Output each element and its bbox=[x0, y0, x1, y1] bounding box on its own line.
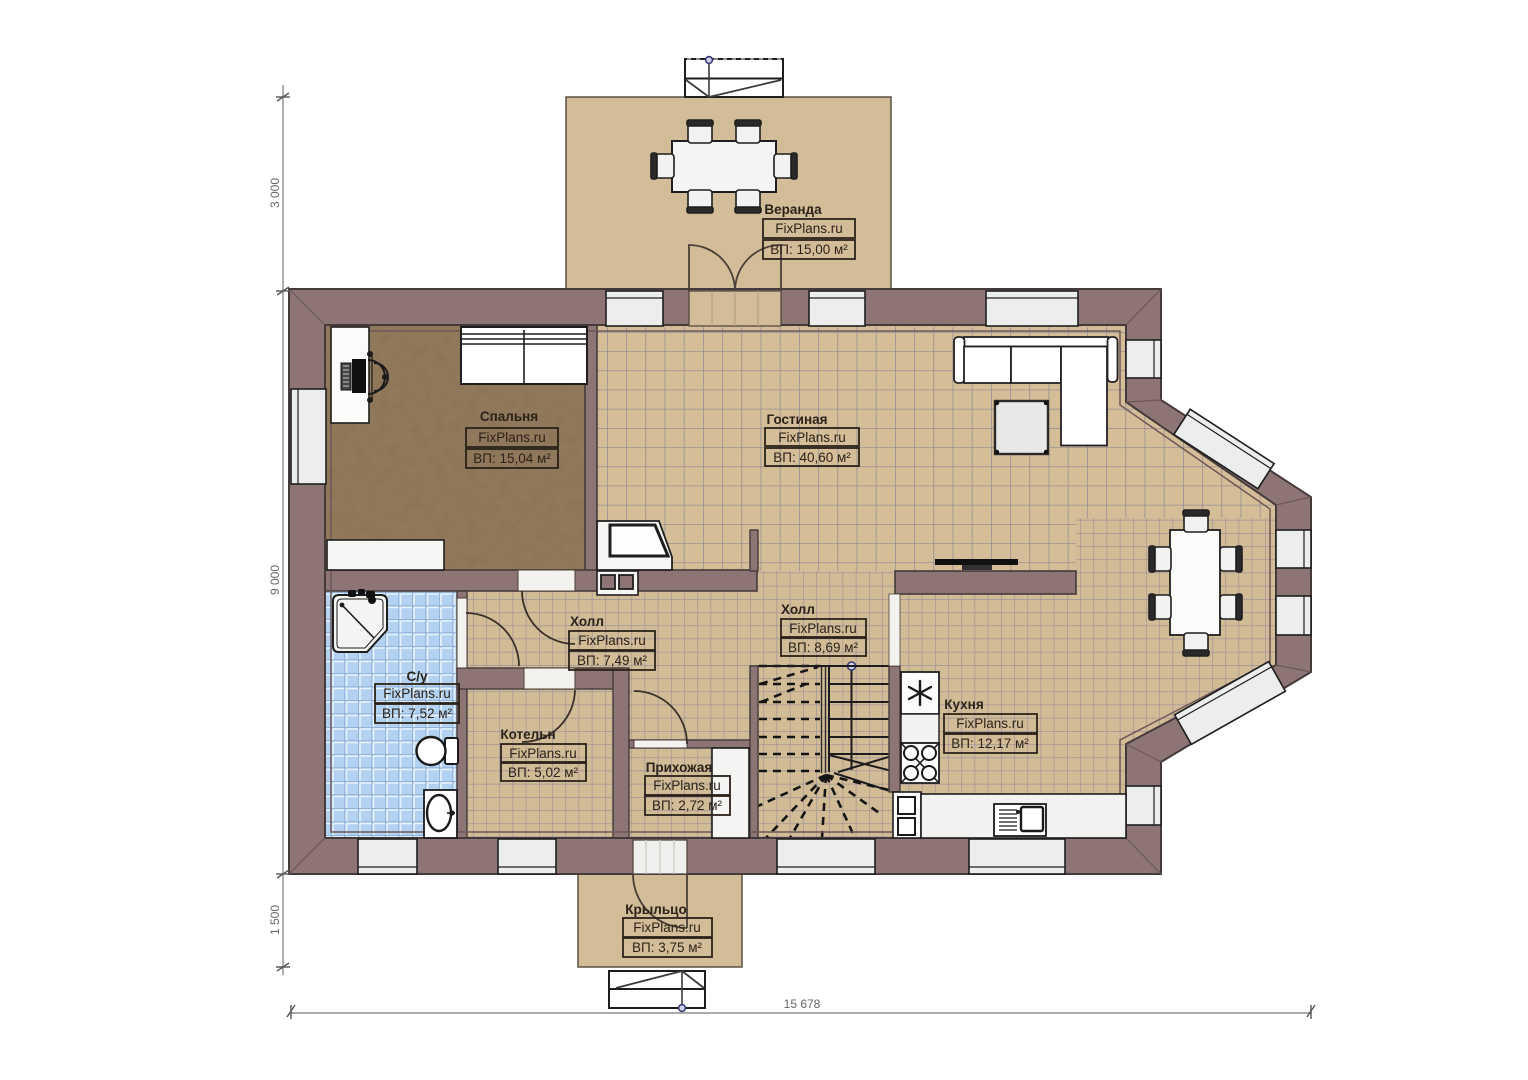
svg-text:15 678: 15 678 bbox=[784, 997, 821, 1011]
svg-text:Котельн: Котельн bbox=[500, 727, 555, 742]
svg-text:Кухня: Кухня bbox=[944, 697, 983, 712]
svg-text:Крыльцо: Крыльцо bbox=[625, 902, 686, 917]
svg-text:Прихожая: Прихожая bbox=[646, 760, 713, 775]
svg-text:ВП: 40,60 м²: ВП: 40,60 м² bbox=[773, 450, 851, 465]
svg-text:С/у: С/у bbox=[406, 669, 428, 684]
svg-text:ВП: 15,04 м²: ВП: 15,04 м² bbox=[473, 451, 551, 466]
svg-text:ВП: 12,17 м²: ВП: 12,17 м² bbox=[951, 736, 1029, 751]
svg-text:Холл: Холл bbox=[570, 614, 604, 629]
svg-text:3 000: 3 000 bbox=[268, 178, 282, 208]
svg-text:FixPlans.ru: FixPlans.ru bbox=[509, 746, 577, 761]
svg-text:ВП: 5,02 м²: ВП: 5,02 м² bbox=[508, 765, 579, 780]
svg-text:Гостиная: Гостиная bbox=[766, 412, 827, 427]
svg-text:FixPlans.ru: FixPlans.ru bbox=[778, 430, 846, 445]
svg-text:FixPlans.ru: FixPlans.ru bbox=[633, 920, 701, 935]
svg-text:FixPlans.ru: FixPlans.ru bbox=[383, 686, 451, 701]
svg-text:ВП: 7,49 м²: ВП: 7,49 м² bbox=[577, 653, 648, 668]
svg-text:FixPlans.ru: FixPlans.ru bbox=[789, 621, 857, 636]
svg-text:Холл: Холл bbox=[781, 602, 815, 617]
svg-text:FixPlans.ru: FixPlans.ru bbox=[956, 716, 1024, 731]
svg-text:ВП: 3,75 м²: ВП: 3,75 м² bbox=[632, 940, 703, 955]
svg-text:FixPlans.ru: FixPlans.ru bbox=[775, 221, 843, 236]
svg-text:ВП: 7,52 м²: ВП: 7,52 м² bbox=[382, 706, 453, 721]
svg-text:ВП: 15,00 м²: ВП: 15,00 м² bbox=[770, 242, 848, 257]
svg-text:Спальня: Спальня bbox=[480, 409, 538, 424]
svg-text:Веранда: Веранда bbox=[764, 202, 822, 217]
svg-text:ВП: 2,72 м²: ВП: 2,72 м² bbox=[652, 798, 723, 813]
svg-text:1 500: 1 500 bbox=[268, 905, 282, 935]
svg-text:FixPlans.ru: FixPlans.ru bbox=[478, 430, 546, 445]
svg-text:FixPlans.ru: FixPlans.ru bbox=[653, 778, 721, 793]
svg-text:FixPlans.ru: FixPlans.ru bbox=[578, 633, 646, 648]
svg-text:ВП: 8,69 м²: ВП: 8,69 м² bbox=[788, 640, 859, 655]
svg-text:9 000: 9 000 bbox=[268, 565, 282, 595]
